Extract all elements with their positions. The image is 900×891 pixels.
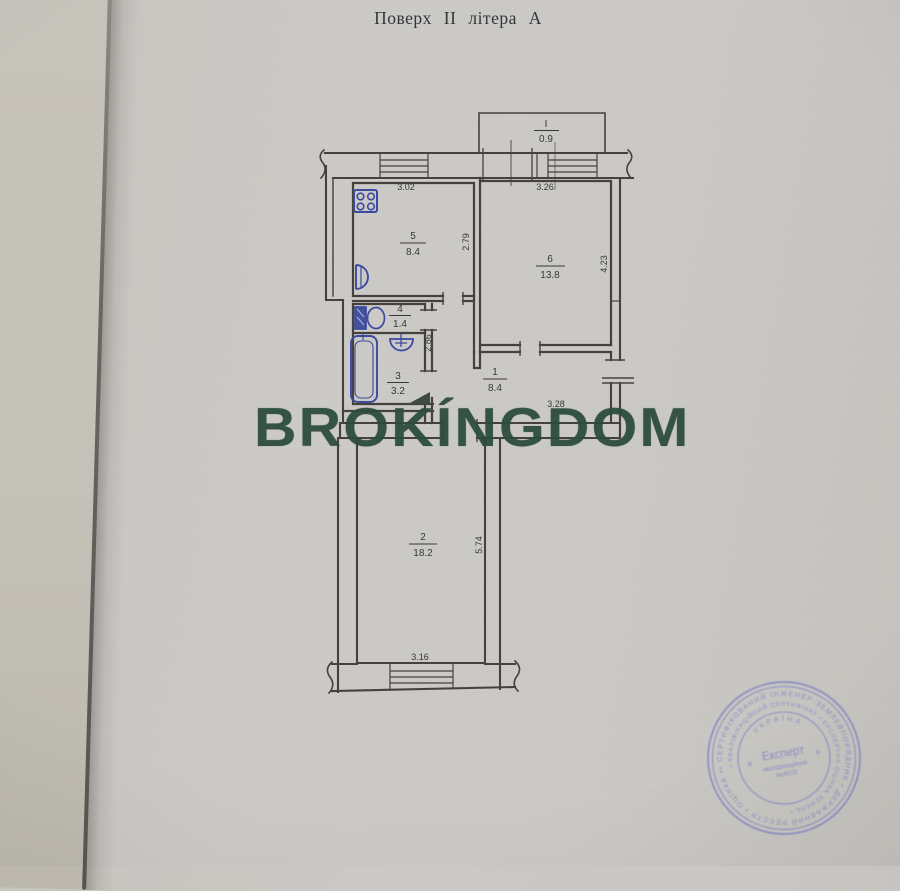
dimension-label: 3.16: [411, 652, 429, 662]
stamp-star-right: ✳: [814, 747, 822, 757]
room-label-area: 0.9: [539, 134, 553, 145]
room-label-number: I: [545, 119, 548, 130]
kitchen-sink-icon: [356, 265, 368, 289]
round-stamp: • СЕРТИФІКОВАНИЙ ІНЖЕНЕР-ЗЕМЛЕВПОРЯДНИК …: [696, 670, 872, 846]
room-label-number: 5: [410, 231, 416, 242]
room-label-number: 4: [397, 304, 403, 315]
room-label-area: 18.2: [413, 548, 433, 559]
dimension-label: 3.26: [536, 182, 554, 192]
toilet-icon: [355, 307, 385, 329]
stamp-inner-arc-text: УКРАЇНА: [751, 711, 805, 735]
room-label-area: 8.4: [488, 383, 502, 394]
bathtub-icon: [351, 333, 377, 402]
dimension-label: 3.02: [397, 182, 415, 192]
dimension-label: 2.86: [423, 334, 433, 352]
dimension-label: 5.74: [474, 536, 484, 554]
document-photo: Поверх II літера А: [0, 0, 900, 866]
room-label-number: 6: [547, 254, 553, 265]
dimension-label: 4.23: [599, 255, 609, 273]
room-label-number: 3: [395, 371, 401, 382]
room-label-number: 2: [420, 532, 426, 543]
stamp-star-left: ✳: [746, 759, 754, 769]
room-label-number: 1: [492, 367, 498, 378]
stove-burners: [357, 193, 374, 210]
stamp-graphics: • СЕРТИФІКОВАНИЙ ІНЖЕНЕР-ЗЕМЛЕВПОРЯДНИК …: [696, 670, 872, 846]
interior-walls: [343, 178, 620, 423]
dimension-label: 2.79: [461, 233, 471, 251]
washbasin-icon: [390, 334, 413, 351]
room-label-area: 13.8: [540, 270, 560, 281]
watermark: BROKÍNGDOM: [254, 400, 691, 455]
room-label-area: 1.4: [393, 319, 407, 330]
room-label-area: 8.4: [406, 247, 420, 258]
